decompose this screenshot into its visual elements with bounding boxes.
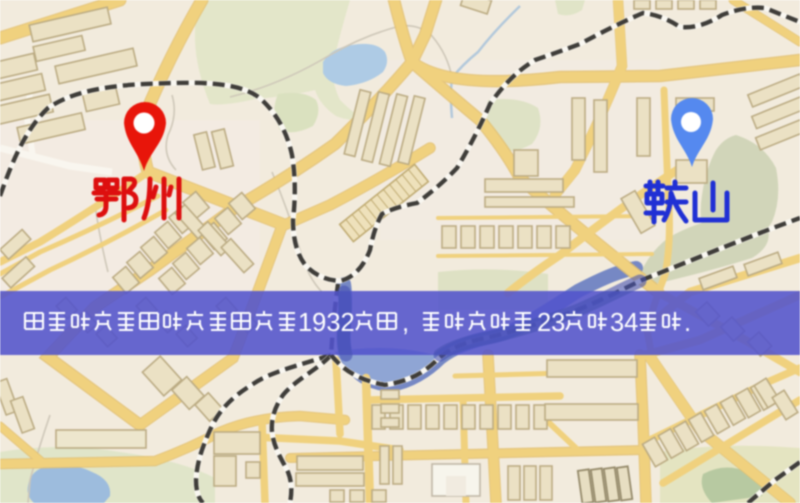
svg-text:23: 23	[537, 309, 565, 337]
svg-text:,: ,	[402, 309, 409, 337]
svg-text:.: .	[684, 309, 691, 337]
svg-text:34: 34	[610, 309, 638, 337]
svg-text:1932: 1932	[298, 309, 355, 337]
